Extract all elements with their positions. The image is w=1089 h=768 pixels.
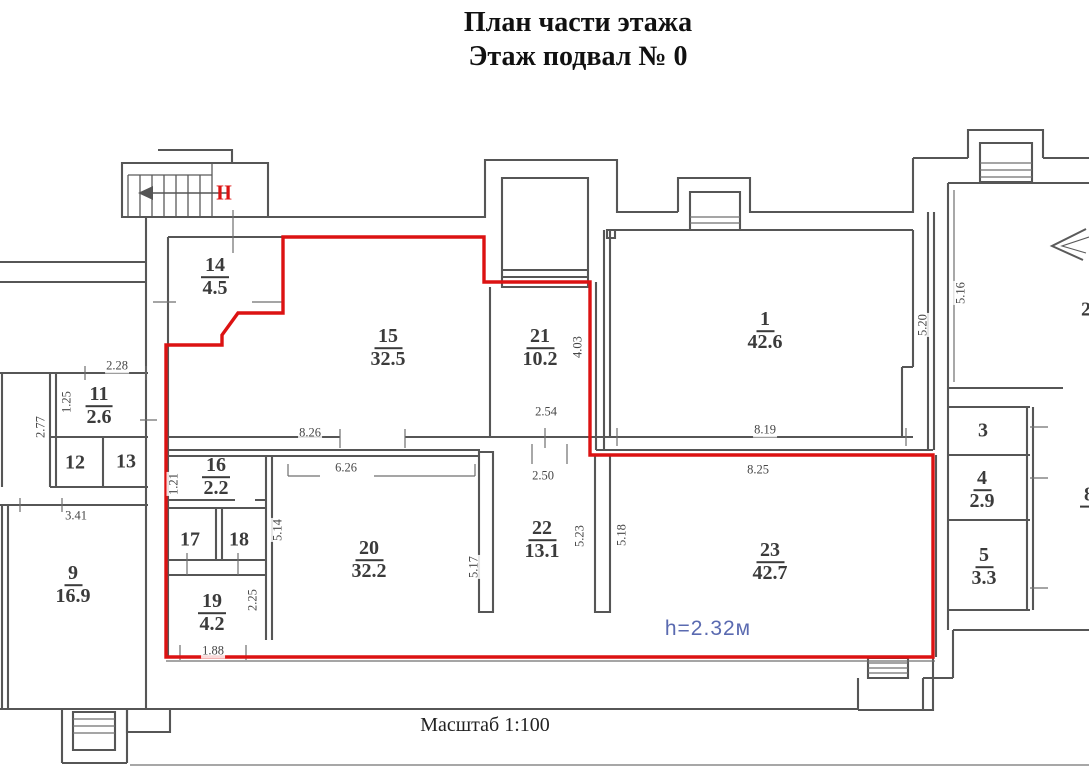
room-number: 4 [973,468,991,491]
room-label: 8 [1080,485,1089,508]
room-label: 112.6 [86,384,113,428]
room-number: 16 [202,455,230,478]
dimension-label: 5.18 [615,523,630,547]
room-label: 3 [974,421,992,442]
stairs-icon [128,163,212,216]
room-label: 2 [1077,300,1089,321]
room-label: 17 [176,530,204,551]
room-area: 4.2 [198,614,226,635]
dimension-label: 1.88 [201,644,225,659]
room-label: 2342.7 [753,540,788,584]
room-number: 23 [756,540,784,563]
dimension-label: 2.54 [534,405,558,420]
dimension-label: 2.50 [531,469,555,484]
room-number: 19 [198,591,226,614]
room-area: 42.7 [753,563,788,584]
room-area: 32.2 [352,561,387,582]
room-label: 142.6 [748,309,783,353]
title-line2: Этаж подвал № 0 [464,40,692,74]
dimension-label: 5.16 [954,281,969,305]
room-area: 2.2 [202,478,230,499]
room-label: 13 [112,452,140,473]
room-area: 10.2 [523,349,558,370]
room-label: 53.3 [972,545,997,589]
dimension-label: 5.17 [467,555,482,579]
room-number: 5 [975,545,993,568]
room-label: 2110.2 [523,326,558,370]
room-number: 18 [225,530,253,551]
title-line1: План части этажа [464,6,692,40]
floor-plan-svg [0,0,1089,768]
room-label: 18 [225,530,253,551]
dimension-label: 4.03 [571,335,586,359]
scale-note: Масштаб 1:100 [420,714,550,737]
dimension-label: 8.26 [298,426,322,441]
dimension-label: 5.20 [916,313,931,337]
dimension-label: 1.21 [167,472,182,496]
room-number: 2 [1077,300,1089,321]
room-label: 194.2 [198,591,226,635]
dimension-label: 5.14 [271,518,286,542]
floor-plan-page: План части этажа Этаж подвал № 0 II 144.… [0,0,1089,768]
stairs-direction-arrow-icon [138,186,228,200]
room-number: 20 [355,538,383,561]
room-area: 2.9 [970,491,995,512]
room-number: 9 [64,563,82,586]
room-number: 13 [112,452,140,473]
room-number: 15 [374,326,402,349]
room-label: 2213.1 [525,518,560,562]
page-title: План части этажа Этаж подвал № 0 [464,6,692,74]
dimension-label: 8.25 [746,463,770,478]
room-area: 13.1 [525,541,560,562]
door-swing-icon [1052,229,1089,260]
room-area: 3.3 [972,568,997,589]
stairwell-label: II [216,181,232,206]
dimension-label: 2.25 [246,588,261,612]
dimension-label: 3.41 [64,509,88,524]
room-number: 3 [974,421,992,442]
room-area: 32.5 [371,349,406,370]
room-label: 1532.5 [371,326,406,370]
room-label: 42.9 [970,468,995,512]
room-area: 2.6 [86,407,113,428]
room-number: 17 [176,530,204,551]
dimension-label: 8.19 [753,423,777,438]
room-area: 42.6 [748,332,783,353]
room-number: 14 [201,255,229,278]
room-label: 2032.2 [352,538,387,582]
dimension-label: 1.25 [60,390,75,414]
room-label: 162.2 [202,455,230,499]
height-note: h=2.32м [665,617,751,641]
room-number: 21 [526,326,554,349]
room-number: 12 [61,453,89,474]
dimension-label: 2.28 [105,359,129,374]
room-label: 916.9 [56,563,91,607]
dimension-label: 2.77 [34,415,49,439]
room-area: 4.5 [201,278,229,299]
detail-lines [20,163,1048,733]
room-number: 8 [1080,485,1089,508]
room-number: 22 [528,518,556,541]
room-number: 11 [86,384,113,407]
room-label: 12 [61,453,89,474]
room-area: 16.9 [56,586,91,607]
room-number: 1 [756,309,774,332]
red-boundary [166,237,933,657]
dimension-label: 6.26 [334,461,358,476]
room-label: 144.5 [201,255,229,299]
dimension-label: 5.23 [573,524,588,548]
